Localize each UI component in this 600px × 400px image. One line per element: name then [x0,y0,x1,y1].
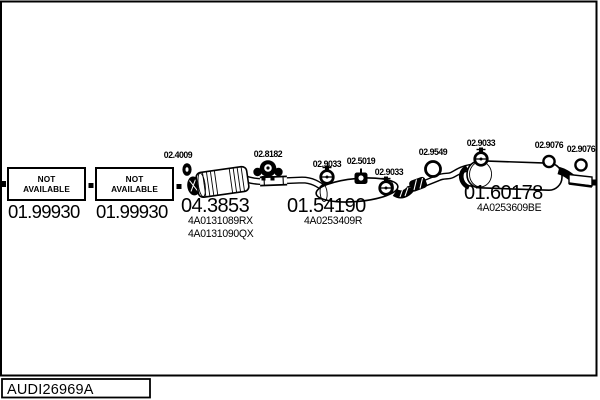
rubber-hanger-icon-2 [355,169,368,185]
na2-line2: AVAILABLE [111,184,158,194]
clamp-icon-3 [475,148,488,166]
fitting-label-hanger-1: 02.8182 [248,150,288,160]
oem-ref-rear-muffler: 4A0253609BE [477,203,541,214]
drawing-number: AUDI26969A [7,383,94,398]
fitting-label-hanger-2: 02.5019 [341,157,381,167]
part-number-na-1: 01.99930 [8,203,80,222]
not-available-label-2: NOT AVAILABLE [97,168,172,200]
oem-ref-center-muffler: 4A0253409R [304,216,362,227]
not-available-label-1: NOT AVAILABLE [9,168,84,200]
na2-line1: NOT [126,174,144,184]
o-ring-icon-3 [575,159,586,170]
front-pipe [246,176,326,189]
exhaust-parts-diagram: NOT AVAILABLE NOT AVAILABLE 01.99930 01.… [0,0,600,400]
oem-ref-catalyst-1: 4A0131089RX [188,216,253,227]
part-number-rear-muffler: 01.60178 [464,183,543,203]
na1-line2: AVAILABLE [23,184,70,194]
fitting-label-clamp-3: 02.9033 [461,139,501,149]
o-ring-icon-2 [543,156,554,167]
part-number-na-2: 01.99930 [96,203,168,222]
tailpipe [559,171,593,187]
fitting-label-oring-1: 02.9549 [413,148,453,158]
fitting-label-oring-3: 02.9076 [561,145,600,155]
fitting-label-gasket: 02.4009 [158,151,198,161]
clamp-icon-2 [380,177,393,195]
oem-ref-catalyst-2: 4A0131090QX [188,229,253,240]
part-number-catalyst: 04.3853 [181,196,249,216]
na1-line1: NOT [38,174,56,184]
part-number-center-muffler: 01.54190 [287,196,366,216]
fitting-label-clamp-2: 02.9033 [369,168,409,178]
o-ring-icon-1 [426,162,441,177]
gasket-icon [182,163,191,176]
